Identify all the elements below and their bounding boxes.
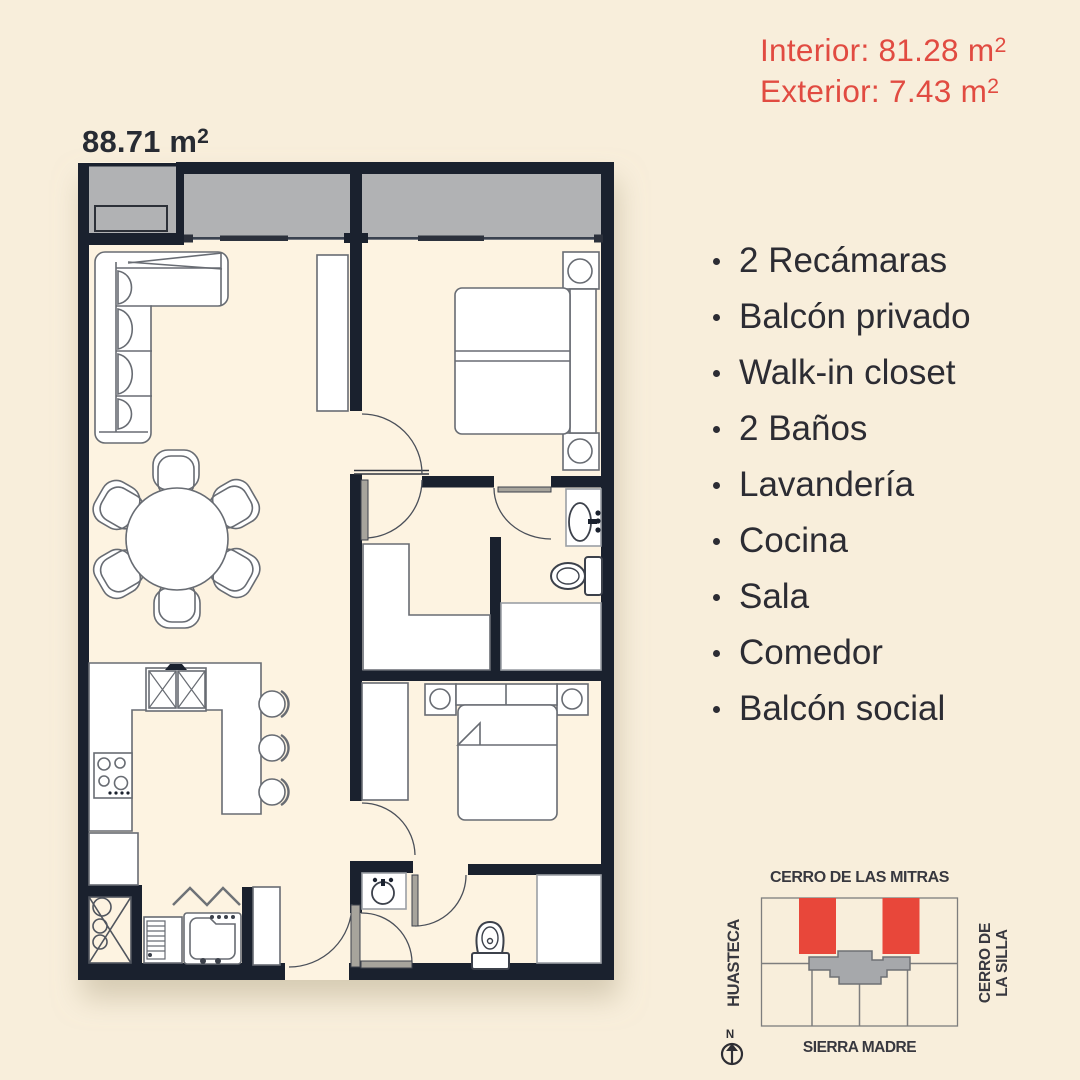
svg-text:CERRO DE LAS MITRAS: CERRO DE LAS MITRAS [770, 869, 950, 886]
svg-text:HUASTECA: HUASTECA [725, 919, 743, 1007]
svg-text:LA SILLA: LA SILLA [994, 929, 1011, 997]
svg-text:N: N [726, 1029, 734, 1041]
svg-text:CERRO DE: CERRO DE [977, 923, 994, 1003]
svg-text:SIERRA MADRE: SIERRA MADRE [803, 1039, 916, 1056]
